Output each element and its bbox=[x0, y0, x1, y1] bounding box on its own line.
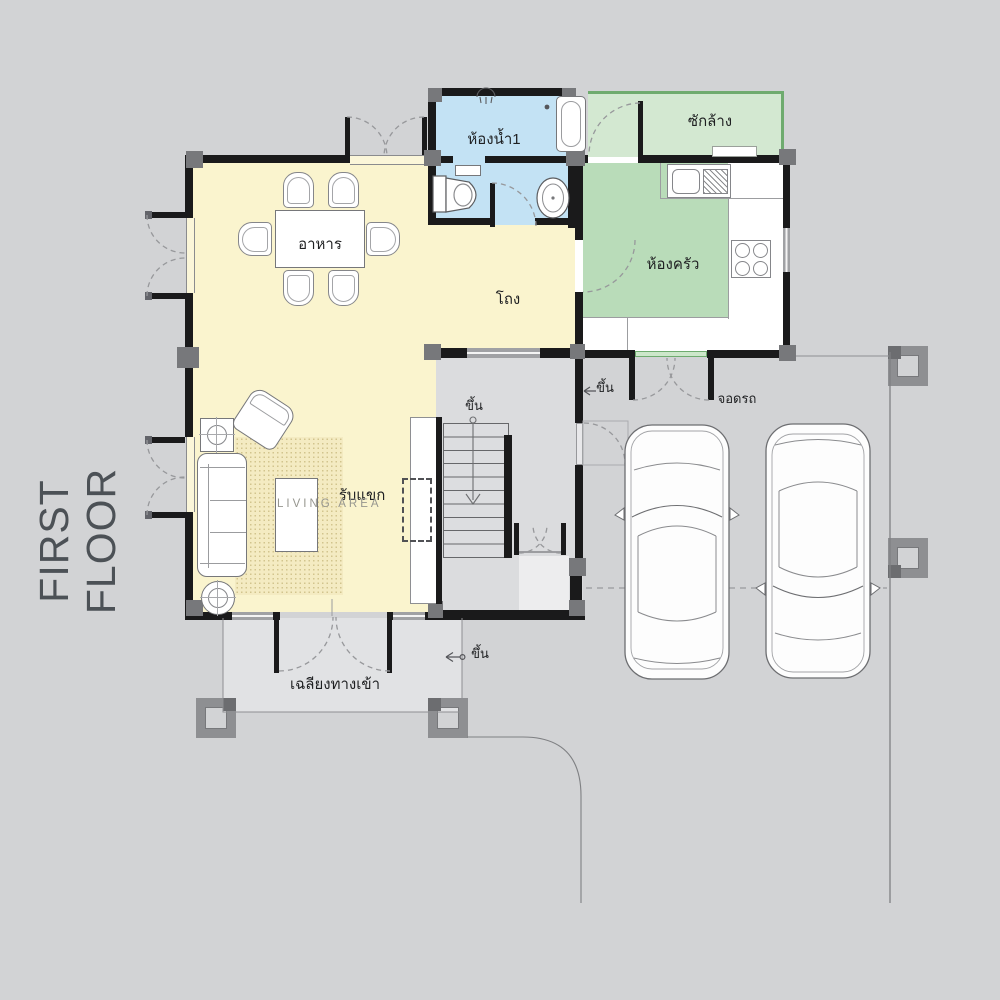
wall bbox=[535, 218, 568, 225]
door-sill bbox=[186, 437, 195, 512]
door-tip-cap bbox=[145, 211, 152, 219]
wall bbox=[185, 293, 193, 350]
sofa-cushion-line bbox=[210, 532, 246, 533]
door-leaf bbox=[708, 356, 714, 400]
counter-edge bbox=[728, 198, 729, 319]
parking-step-arrow bbox=[584, 387, 596, 395]
door-leaf bbox=[629, 356, 635, 400]
armchair bbox=[230, 385, 298, 452]
side-table-circle bbox=[208, 588, 228, 608]
label-hall: โถง bbox=[496, 291, 520, 308]
porch-column-notch bbox=[223, 698, 236, 711]
side-table-circle bbox=[207, 425, 227, 445]
chair-seat bbox=[332, 275, 355, 302]
chair-seat bbox=[332, 177, 355, 204]
label-porch-step-up: ขึ้น bbox=[471, 647, 489, 662]
column-cap bbox=[186, 600, 203, 616]
stair-divider-wall bbox=[504, 435, 512, 558]
bathtub bbox=[556, 96, 586, 152]
crosshair-v bbox=[216, 417, 217, 453]
crosshair-h bbox=[199, 434, 235, 435]
kitchen-door-sill bbox=[635, 351, 707, 357]
label-bathroom: ห้องน้ำ1 bbox=[467, 131, 520, 148]
armchair-wrap bbox=[234, 390, 294, 450]
overhead-dashed-cabinet bbox=[402, 478, 432, 542]
door-sill bbox=[350, 155, 427, 165]
window bbox=[232, 612, 273, 620]
sofa-cushion-line bbox=[210, 500, 246, 501]
chair bbox=[283, 172, 314, 208]
door-leaf bbox=[490, 183, 495, 227]
door-leaf bbox=[638, 101, 643, 157]
stove bbox=[731, 240, 771, 278]
wall bbox=[638, 155, 783, 163]
window bbox=[783, 228, 790, 272]
wall bbox=[575, 465, 583, 558]
column-cap bbox=[779, 345, 796, 361]
chair bbox=[328, 270, 359, 306]
armchair-back bbox=[249, 391, 292, 426]
door-tip-cap bbox=[145, 511, 152, 519]
door-leaf bbox=[147, 437, 185, 443]
counter-edge bbox=[660, 163, 661, 199]
floor-vestibule bbox=[519, 556, 569, 610]
floor-plan-canvas: FIRST FLOOR ห้องน้ำ1 ซักล้าง ห้องครัว อา… bbox=[0, 0, 1000, 1000]
window bbox=[393, 612, 425, 620]
wall bbox=[185, 512, 193, 614]
chair bbox=[366, 222, 400, 256]
wall bbox=[185, 367, 193, 437]
side-table-round bbox=[201, 581, 235, 615]
site-column-notch bbox=[888, 565, 901, 578]
door-leaf bbox=[561, 523, 566, 555]
chair bbox=[238, 222, 272, 256]
kitchen-sink-unit bbox=[667, 164, 731, 198]
column-cap bbox=[428, 88, 442, 102]
label-dining: อาหาร bbox=[298, 236, 342, 253]
wall bbox=[575, 163, 583, 240]
porch-column-notch bbox=[428, 698, 441, 711]
label-stairs-up: ขึ้น bbox=[465, 399, 483, 414]
door-leaf bbox=[147, 212, 185, 218]
wall bbox=[193, 155, 350, 163]
floor-hall bbox=[436, 225, 575, 348]
counter-edge bbox=[660, 198, 783, 199]
wall bbox=[428, 88, 576, 96]
wall bbox=[436, 417, 442, 604]
door-leaf bbox=[387, 615, 392, 673]
side-table-square bbox=[200, 418, 234, 452]
staircase bbox=[443, 423, 509, 558]
sofa-back bbox=[198, 464, 209, 568]
sink-drainboard bbox=[703, 169, 728, 194]
crosshair-v bbox=[217, 580, 218, 616]
sofa bbox=[197, 453, 247, 577]
chair bbox=[328, 172, 359, 208]
burner bbox=[735, 243, 750, 258]
counter-edge bbox=[583, 317, 729, 318]
wall bbox=[485, 156, 568, 163]
burner bbox=[753, 243, 768, 258]
door-leaf bbox=[147, 293, 185, 299]
column-cap bbox=[569, 600, 585, 616]
door-leaf bbox=[274, 615, 279, 673]
floor-porch bbox=[223, 618, 462, 712]
crosshair-h bbox=[200, 597, 236, 598]
page-title: FIRST FLOOR bbox=[31, 411, 125, 671]
label-parking-step-up: ขึ้น bbox=[596, 381, 614, 396]
sofa-armrest bbox=[200, 563, 245, 577]
door-sill bbox=[576, 423, 583, 465]
column-cap bbox=[779, 149, 796, 165]
door-tip-cap bbox=[145, 292, 152, 300]
threshold bbox=[519, 551, 561, 553]
laundry-step bbox=[712, 146, 757, 157]
door-leaf bbox=[147, 512, 185, 518]
column-cap bbox=[186, 151, 203, 168]
label-porch: เฉลียงทางเข้า bbox=[290, 676, 380, 693]
laundry-edge-top bbox=[588, 91, 783, 94]
column-cap bbox=[177, 347, 199, 368]
laundry-edge-right bbox=[781, 91, 784, 157]
label-kitchen: ห้องครัว bbox=[647, 256, 700, 273]
coffee-table bbox=[275, 478, 318, 552]
chair-seat bbox=[370, 227, 396, 252]
sink-basin bbox=[672, 169, 700, 194]
burner bbox=[735, 261, 750, 276]
wall bbox=[428, 218, 490, 225]
chair-seat bbox=[287, 177, 310, 204]
wall bbox=[707, 350, 790, 358]
sofa-armrest bbox=[200, 454, 245, 468]
column-cap bbox=[424, 150, 441, 166]
toilet-cistern bbox=[455, 165, 481, 176]
wall bbox=[575, 358, 583, 423]
label-living-en: LIVING AREA bbox=[277, 498, 382, 510]
chair bbox=[283, 270, 314, 306]
column-cap bbox=[570, 344, 585, 359]
side-door-frame bbox=[583, 421, 628, 465]
counter-edge bbox=[627, 317, 628, 353]
window bbox=[467, 348, 540, 358]
column-cap bbox=[569, 558, 586, 576]
car-1 bbox=[615, 425, 739, 679]
wall bbox=[783, 272, 790, 353]
door-sill bbox=[186, 218, 195, 293]
car-2 bbox=[756, 424, 880, 678]
bathtub-basin bbox=[561, 101, 581, 147]
chair-seat bbox=[242, 227, 268, 252]
label-parking: จอดรถ bbox=[718, 392, 757, 407]
burner bbox=[753, 261, 768, 276]
wall bbox=[443, 610, 585, 620]
column-cap bbox=[424, 344, 441, 360]
door-leaf bbox=[345, 117, 350, 157]
chair-seat bbox=[287, 275, 310, 302]
wall bbox=[783, 155, 790, 228]
wall bbox=[575, 292, 583, 350]
door-tip-cap bbox=[145, 436, 152, 444]
label-laundry: ซักล้าง bbox=[688, 113, 732, 130]
site-column-notch bbox=[888, 346, 901, 359]
